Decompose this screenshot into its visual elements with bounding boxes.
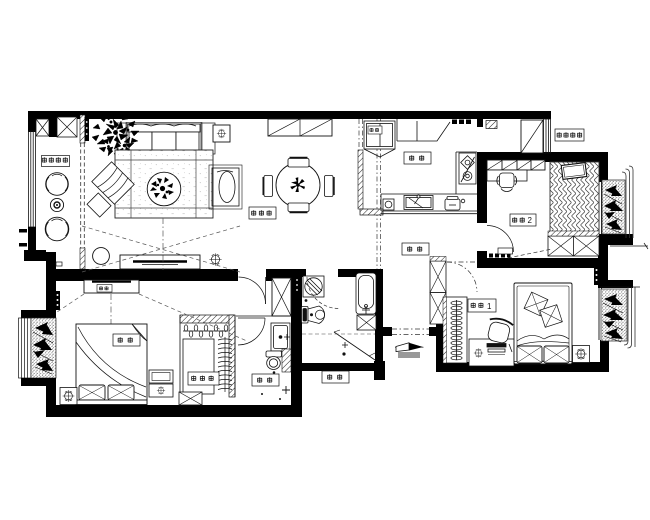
svg-text:1: 1 [487,302,492,311]
svg-text:2: 2 [528,216,533,225]
